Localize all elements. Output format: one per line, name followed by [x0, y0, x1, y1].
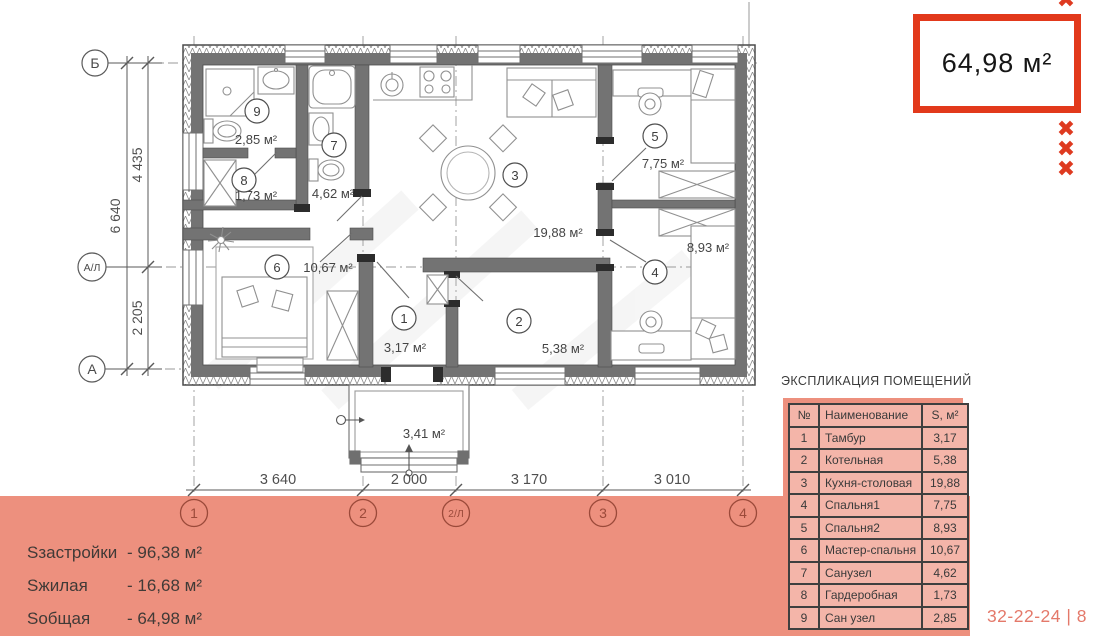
- bathtub: [309, 66, 355, 108]
- dim-left-overall: 6 640: [107, 198, 123, 233]
- entry-opening: [387, 367, 437, 385]
- stove: [420, 67, 454, 97]
- sink: [258, 67, 294, 94]
- row-area: 5,38: [922, 449, 968, 472]
- table-row: 8Гардеробная1,73: [789, 584, 968, 607]
- row-name: Кухня-столовая: [819, 472, 922, 495]
- room-6-number: 6: [273, 260, 280, 275]
- row-area: 3,17: [922, 427, 968, 450]
- room-2-number: 2: [515, 314, 522, 329]
- table-row: 9Сан узел2,85: [789, 607, 968, 630]
- axis-label-2: 2: [359, 505, 367, 521]
- room-7-number: 7: [330, 138, 337, 153]
- room-3-area: 19,88 м²: [533, 225, 583, 240]
- x-marks-column: ✖ ✖ ✖: [1053, 119, 1079, 179]
- explication-table: № Наименование S, м² 1Тамбур3,17 2Котель…: [788, 403, 969, 630]
- room-9-number: 9: [253, 104, 260, 119]
- office-chair: [638, 88, 663, 115]
- row-area: 2,85: [922, 607, 968, 630]
- room-2-area: 5,38 м²: [542, 341, 585, 356]
- row-num: 5: [789, 517, 819, 540]
- table-row: 1Тамбур3,17: [789, 427, 968, 450]
- dim-bottom-1: 3 640: [260, 472, 296, 488]
- col-header-area: S, м²: [922, 404, 968, 427]
- row-area: 4,62: [922, 562, 968, 585]
- room-1-number: 1: [400, 311, 407, 326]
- porch-area: 3,41 м²: [403, 426, 446, 441]
- room-6-area: 10,67 м²: [303, 260, 353, 275]
- row-area: 19,88: [922, 472, 968, 495]
- room-7-area: 4,62 м²: [312, 186, 355, 201]
- kitchen-sink: [381, 72, 403, 96]
- dining-set: [420, 125, 517, 221]
- axis-label-1: 1: [190, 505, 198, 521]
- table-row: 4Спальня17,75: [789, 494, 968, 517]
- row-num: 3: [789, 472, 819, 495]
- summary-value: - 16,68 м²: [127, 576, 202, 595]
- table-row: 7Санузел4,62: [789, 562, 968, 585]
- summary-line: Sжилая- 16,68 м²: [27, 576, 202, 596]
- row-num: 4: [789, 494, 819, 517]
- axis-label-a: А: [87, 361, 97, 377]
- row-num: 7: [789, 562, 819, 585]
- row-area: 10,67: [922, 539, 968, 562]
- axis-label-4: 4: [739, 505, 747, 521]
- summary-line: Sобщая- 64,98 м²: [27, 609, 202, 629]
- room-1-area: 3,17 м²: [384, 340, 427, 355]
- table-row: 5Спальня28,93: [789, 517, 968, 540]
- shelf: [427, 275, 448, 304]
- row-area: 8,93: [922, 517, 968, 540]
- row-name: Спальня1: [819, 494, 922, 517]
- furniture: [204, 65, 735, 372]
- axis-label-b: Б: [90, 55, 99, 71]
- toilet: [309, 159, 344, 181]
- table-row: 3Кухня-столовая19,88: [789, 472, 968, 495]
- double-bed: [216, 247, 313, 359]
- dim-bottom-4: 3 010: [654, 472, 690, 488]
- drawing-sheet: 3 640 2 000 3 170 3 010 6 640 4 435 2 20…: [0, 0, 1099, 636]
- col-header-num: №: [789, 404, 819, 427]
- row-name: Мастер-спальня: [819, 539, 922, 562]
- axis-bubbles-bottom: [181, 500, 757, 527]
- wardrobe: [659, 171, 735, 198]
- table-row: 2Котельная5,38: [789, 449, 968, 472]
- sheet-code: 32-22-24 | 8: [987, 606, 1087, 627]
- dim-left-lower: 2 205: [129, 300, 145, 335]
- wardrobe: [204, 160, 236, 206]
- row-name: Сан узел: [819, 607, 922, 630]
- room-8-area: 1,73 м²: [235, 188, 278, 203]
- area-summary: Sзастройки- 96,38 м² Sжилая- 16,68 м² Sо…: [27, 543, 202, 636]
- bed: [691, 69, 735, 163]
- row-num: 2: [789, 449, 819, 472]
- room-9-area: 2,85 м²: [235, 132, 278, 147]
- dim-bottom-2: 2 000: [391, 472, 427, 488]
- summary-label: Sобщая: [27, 609, 127, 629]
- row-name: Гардеробная: [819, 584, 922, 607]
- axis-bubbles-left: [78, 50, 108, 382]
- summary-value: - 64,98 м²: [127, 609, 202, 628]
- summary-value: - 96,38 м²: [127, 543, 202, 562]
- row-area: 1,73: [922, 584, 968, 607]
- row-name: Санузел: [819, 562, 922, 585]
- sofa: [507, 68, 596, 117]
- row-name: Тамбур: [819, 427, 922, 450]
- table-header-row: № Наименование S, м²: [789, 404, 968, 427]
- col-header-name: Наименование: [819, 404, 922, 427]
- explication-title: ЭКСПЛИКАЦИЯ ПОМЕЩЕНИЙ: [781, 374, 1001, 388]
- row-num: 9: [789, 607, 819, 630]
- room-5-number: 5: [651, 129, 658, 144]
- axis-label-al: А/Л: [84, 262, 101, 274]
- row-num: 8: [789, 584, 819, 607]
- row-num: 1: [789, 427, 819, 450]
- summary-label: Sжилая: [27, 576, 127, 596]
- room-5-area: 7,75 м²: [642, 156, 685, 171]
- room-3-number: 3: [511, 168, 518, 183]
- axis-label-3: 3: [599, 505, 607, 521]
- x-mark-icon: ✖: [1053, 159, 1079, 179]
- summary-label: Sзастройки: [27, 543, 127, 563]
- row-name: Котельная: [819, 449, 922, 472]
- x-mark-icon: ✖: [1053, 0, 1079, 10]
- table-row: 6Мастер-спальня10,67: [789, 539, 968, 562]
- room-4-area: 8,93 м²: [687, 240, 730, 255]
- total-area-value: 64,98 м²: [942, 48, 1053, 79]
- room-8-number: 8: [240, 173, 247, 188]
- wardrobe: [327, 291, 358, 360]
- tv-console: [257, 358, 303, 372]
- room-4-number: 4: [651, 265, 658, 280]
- dim-left-upper: 4 435: [129, 147, 145, 182]
- summary-line: Sзастройки- 96,38 м²: [27, 543, 202, 563]
- dim-bottom-3: 3 170: [511, 472, 547, 488]
- total-area-badge: 64,98 м²: [913, 14, 1081, 113]
- axis-label-2l: 2/Л: [448, 508, 464, 520]
- row-area: 7,75: [922, 494, 968, 517]
- row-name: Спальня2: [819, 517, 922, 540]
- row-num: 6: [789, 539, 819, 562]
